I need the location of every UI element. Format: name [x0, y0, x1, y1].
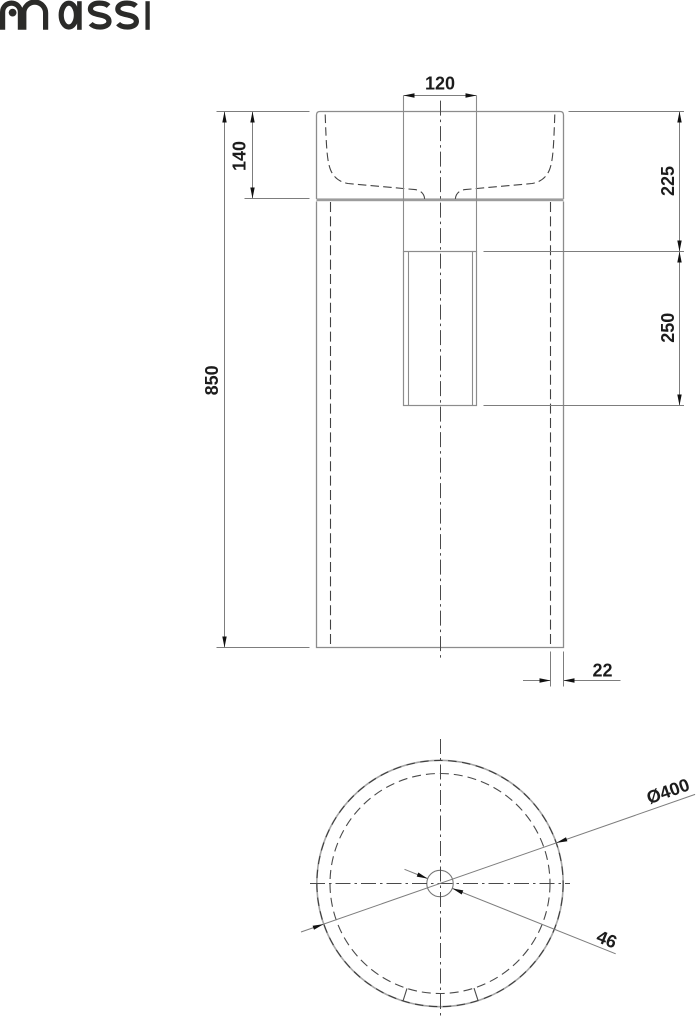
svg-text:225: 225 [658, 166, 678, 196]
svg-text:120: 120 [425, 74, 455, 94]
svg-text:250: 250 [658, 313, 678, 343]
svg-text:850: 850 [202, 365, 222, 395]
svg-text:140: 140 [230, 141, 250, 171]
svg-text:46: 46 [594, 926, 620, 952]
svg-text:Ø400: Ø400 [644, 775, 692, 808]
svg-text:22: 22 [592, 661, 612, 681]
